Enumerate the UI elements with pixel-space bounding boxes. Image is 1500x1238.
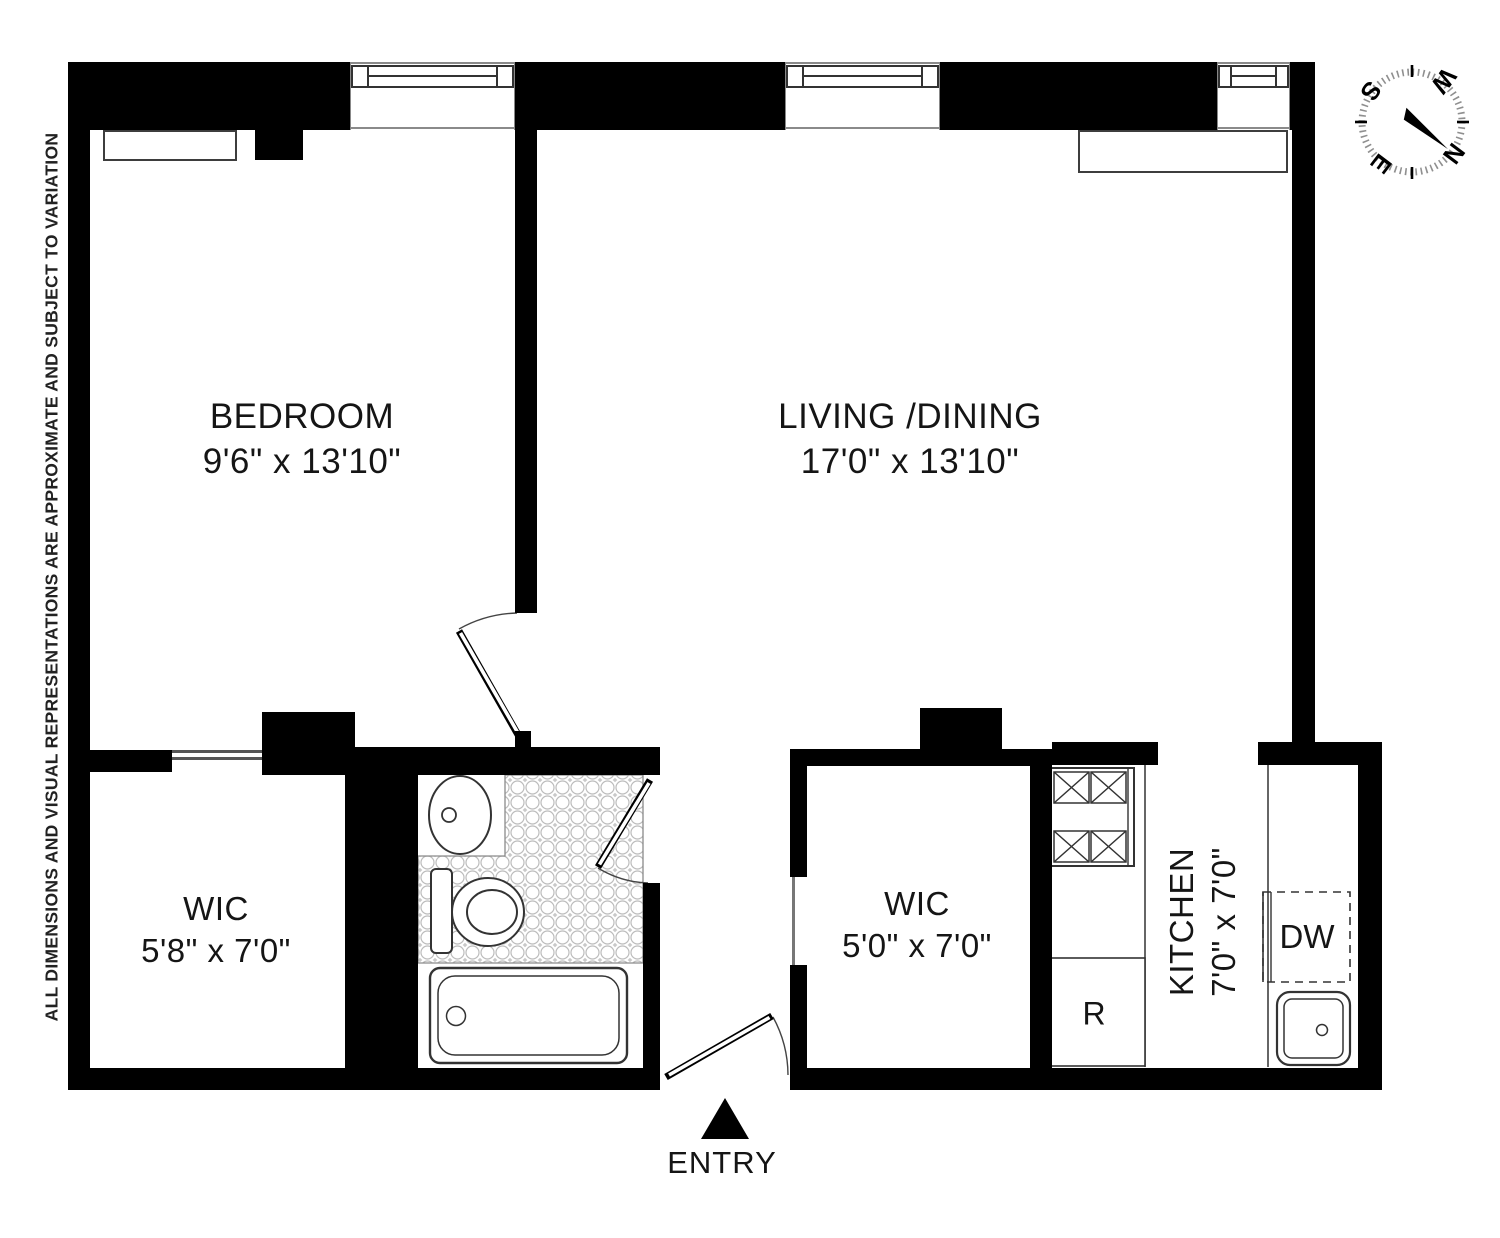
window-frame bbox=[1218, 65, 1232, 88]
window bbox=[1217, 62, 1290, 130]
window-frame bbox=[786, 62, 939, 64]
bedroom-dims: 9'6" x 13'10" bbox=[203, 440, 401, 485]
kitchen-sink bbox=[1277, 992, 1350, 1065]
wall-chase bbox=[345, 775, 418, 1068]
bathtub bbox=[430, 968, 627, 1063]
entry-door bbox=[666, 1016, 788, 1077]
wic-right-dims: 5'0" x 7'0" bbox=[842, 925, 992, 967]
window-frame bbox=[803, 75, 922, 77]
wall bbox=[262, 747, 660, 775]
wic-right-opening bbox=[792, 877, 795, 965]
compass-s: S bbox=[1354, 76, 1386, 106]
living-room-unit bbox=[1078, 130, 1288, 173]
wall bbox=[1292, 62, 1315, 765]
kitchen-dims: 7'0" x 7'0" bbox=[1203, 847, 1245, 997]
window-frame bbox=[351, 62, 514, 64]
wall bbox=[790, 749, 1052, 766]
wic-left-dims: 5'8" x 7'0" bbox=[141, 930, 291, 972]
wall bbox=[643, 883, 660, 1068]
bedroom-label: BEDROOM 9'6" x 13'10" bbox=[203, 395, 401, 485]
window-sill bbox=[786, 127, 939, 129]
window-frame bbox=[921, 65, 939, 88]
wall bbox=[1258, 742, 1382, 765]
compass-e: E bbox=[1365, 148, 1397, 178]
stove bbox=[1050, 768, 1134, 866]
wic-right-name: WIC bbox=[842, 883, 992, 925]
bedroom-closet bbox=[103, 130, 237, 161]
window-frame bbox=[786, 65, 804, 88]
wic-left-opening bbox=[172, 750, 262, 753]
compass-w: W bbox=[1425, 63, 1462, 99]
floor-plan: N E S W bbox=[0, 0, 1500, 1238]
wall bbox=[1030, 749, 1052, 1068]
living-dining-label: LIVING /DINING 17'0" x 13'10" bbox=[778, 395, 1042, 485]
window-sill bbox=[1218, 127, 1289, 129]
kitchen-name: KITCHEN bbox=[1161, 847, 1203, 997]
wall bbox=[90, 750, 172, 772]
wall bbox=[790, 965, 807, 1068]
wic-left-opening bbox=[172, 757, 262, 760]
window-sill bbox=[351, 127, 514, 129]
wall bbox=[262, 712, 355, 752]
wall-partition bbox=[515, 130, 537, 613]
refrigerator-label: R bbox=[1082, 996, 1105, 1033]
disclaimer-text: ALL DIMENSIONS AND VISUAL REPRESENTATION… bbox=[42, 133, 63, 1022]
window-frame bbox=[1275, 65, 1289, 88]
window-frame bbox=[351, 65, 369, 88]
wall bbox=[940, 62, 1217, 130]
living-dining-name: LIVING /DINING bbox=[778, 395, 1042, 440]
entry-label: ENTRY bbox=[667, 1145, 777, 1181]
living-dining-dims: 17'0" x 13'10" bbox=[778, 440, 1042, 485]
bathroom-sink bbox=[429, 776, 491, 854]
fixtures-layer: N E S W bbox=[0, 0, 1500, 1238]
window bbox=[785, 62, 940, 130]
wic-left-label: WIC 5'8" x 7'0" bbox=[141, 888, 291, 972]
wall bbox=[515, 62, 785, 130]
wall bbox=[1358, 742, 1382, 1090]
compass: N E S W bbox=[1323, 31, 1500, 210]
window-frame bbox=[368, 75, 497, 77]
wall bbox=[255, 130, 303, 160]
wall bbox=[790, 749, 807, 877]
bedroom-door bbox=[459, 613, 521, 740]
wall bbox=[68, 1068, 660, 1090]
wall bbox=[920, 708, 1002, 749]
dishwasher-label: DW bbox=[1280, 918, 1335, 956]
window-frame bbox=[1231, 75, 1276, 77]
bedroom-name: BEDROOM bbox=[203, 395, 401, 440]
window bbox=[350, 62, 515, 130]
wall bbox=[68, 62, 90, 1090]
wall bbox=[1052, 742, 1158, 765]
wic-right-label: WIC 5'0" x 7'0" bbox=[842, 883, 992, 967]
entry-arrow-icon bbox=[701, 1098, 749, 1139]
wall bbox=[68, 62, 350, 130]
window-frame bbox=[496, 65, 514, 88]
wall bbox=[790, 1068, 1382, 1090]
kitchen-label: KITCHEN 7'0" x 7'0" bbox=[1161, 847, 1245, 997]
window-frame bbox=[1218, 62, 1289, 64]
wic-left-name: WIC bbox=[141, 888, 291, 930]
